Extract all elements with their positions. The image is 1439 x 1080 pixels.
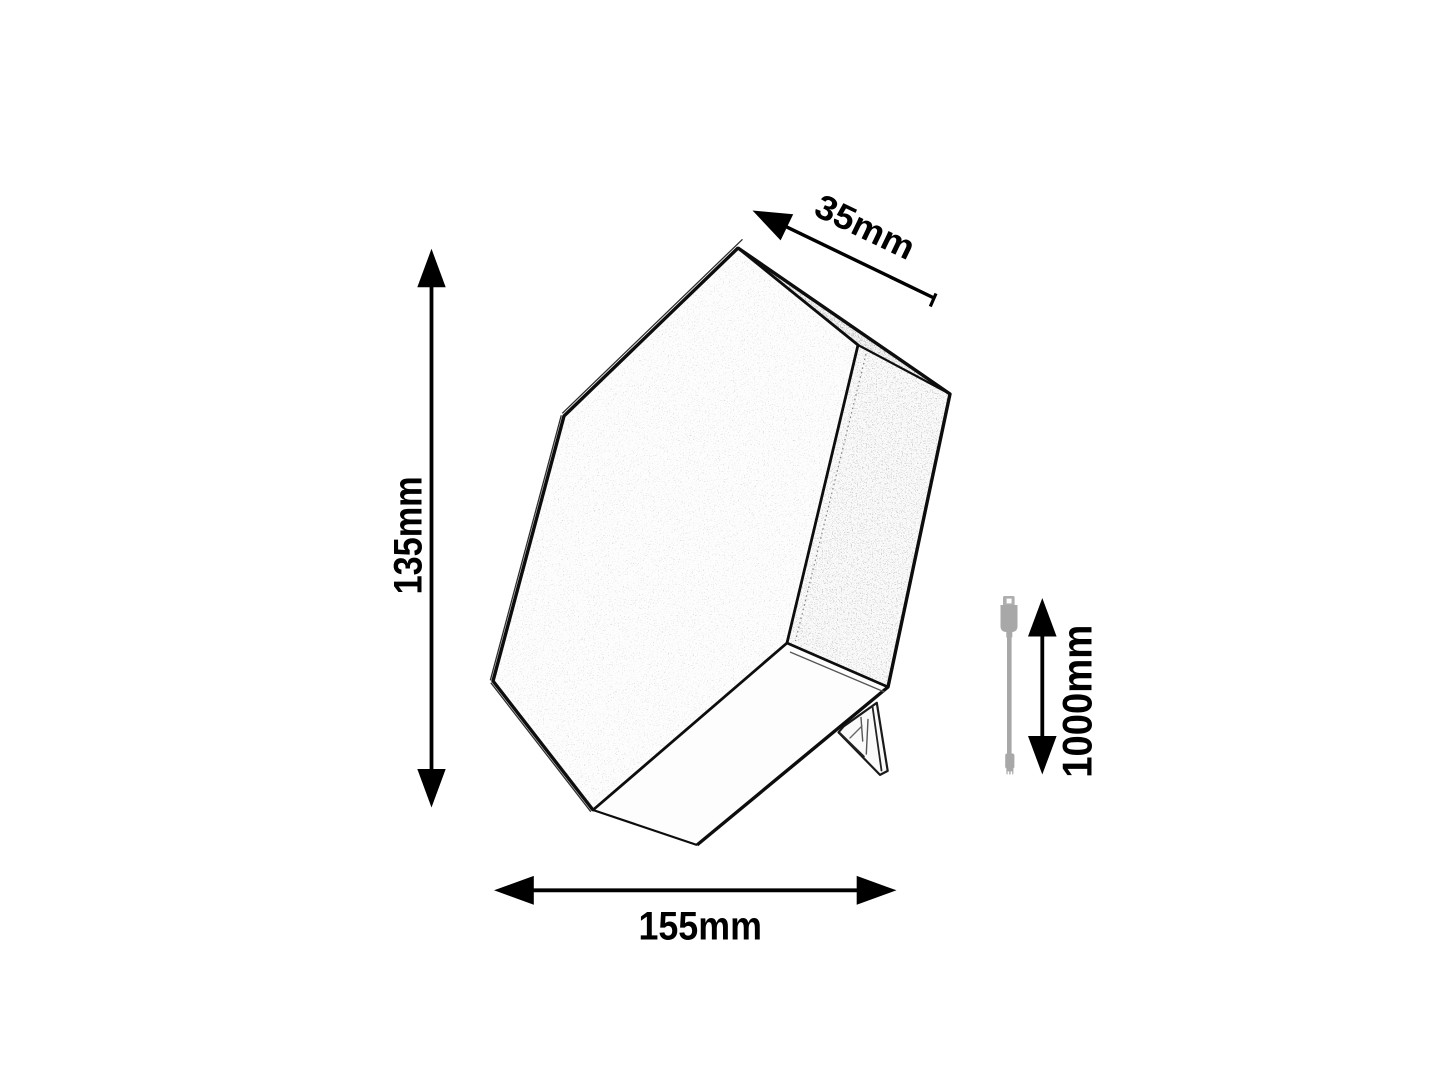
svg-text:155mm: 155mm <box>638 905 762 949</box>
svg-text:135mm: 135mm <box>387 476 431 594</box>
svg-text:1000mm: 1000mm <box>1053 625 1100 778</box>
